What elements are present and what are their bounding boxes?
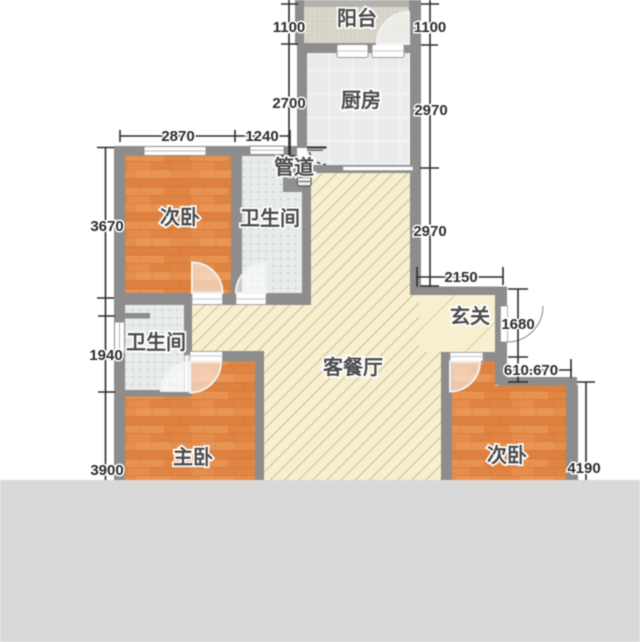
svg-text:1100: 1100 <box>273 19 306 36</box>
svg-text:客餐厅: 客餐厅 <box>322 355 383 379</box>
svg-text:3900: 3900 <box>90 462 123 479</box>
svg-text:玄关: 玄关 <box>450 304 490 328</box>
svg-text:厨房: 厨房 <box>341 88 381 112</box>
svg-text:卫生间: 卫生间 <box>126 331 186 354</box>
svg-text:2970: 2970 <box>414 102 447 119</box>
svg-text:次卧: 次卧 <box>160 205 200 229</box>
svg-text:阳台: 阳台 <box>337 6 377 30</box>
svg-text:1680: 1680 <box>501 316 534 333</box>
svg-text:1940: 1940 <box>89 347 122 364</box>
svg-text:管道: 管道 <box>274 155 314 179</box>
svg-text:4190: 4190 <box>567 460 600 477</box>
svg-text:2870: 2870 <box>161 128 194 145</box>
svg-text:主卧: 主卧 <box>173 445 213 469</box>
svg-text:卫生间: 卫生间 <box>240 207 300 230</box>
svg-text:3670: 3670 <box>90 218 123 235</box>
svg-text:1240: 1240 <box>245 128 278 145</box>
svg-text:2150: 2150 <box>444 269 477 286</box>
svg-text:1100: 1100 <box>414 19 447 36</box>
svg-text:次卧: 次卧 <box>487 443 527 467</box>
svg-text:2700: 2700 <box>272 95 305 112</box>
svg-text:610.670: 610.670 <box>504 362 558 379</box>
svg-text:2970: 2970 <box>413 223 446 240</box>
